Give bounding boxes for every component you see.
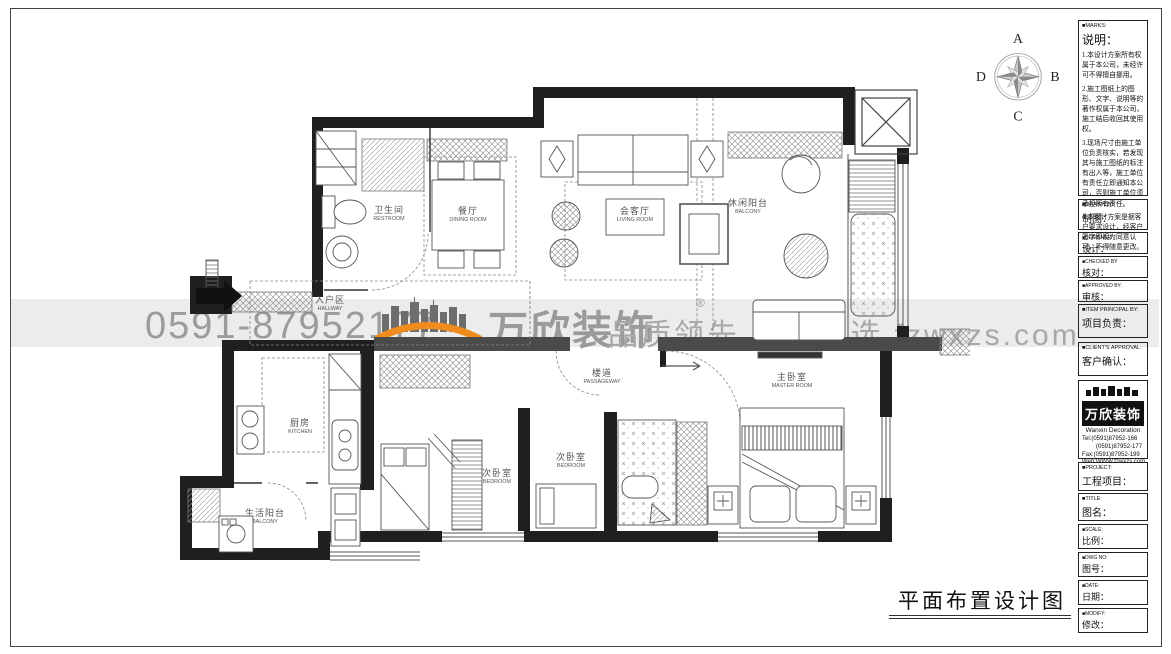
titleblock-company: 万欣装饰 Wanxin Decoration Tel:(0591)87952-1… <box>1078 380 1148 459</box>
label-living: 会客厅 LIVING ROOM <box>615 206 655 225</box>
svg-text:D: D <box>976 69 986 84</box>
label-service-balcony: 生活阳台 BALCONY <box>245 508 285 527</box>
air-shaft <box>855 90 917 154</box>
label-bedroom1: 次卧室 BEDROOM <box>481 468 512 487</box>
titleblock-checked-by: ■CHECKED BY 核对： <box>1078 256 1148 278</box>
title-underline <box>889 615 1071 616</box>
compass-icon: A B C D <box>975 26 1061 124</box>
label-master: 主卧室 MASTER ROOM <box>769 372 814 391</box>
drawing-sheet: 0591-87952177 万欣装饰 ® 品质领先 诚心之选 fzwxzs.co… <box>0 0 1171 654</box>
company-logo: 万欣装饰 <box>1082 401 1144 426</box>
company-name-en: Wanxin Decoration <box>1082 427 1144 434</box>
masonry-column-hatch <box>940 329 970 355</box>
titleblock-marks: ■MARKS: 说明： 1.本设计方案所有权属于本公司，未经许可不得擅自挪用。 … <box>1078 20 1148 196</box>
label-bedroom2: 次卧室 BEDROOM <box>555 452 586 471</box>
titleblock-designer: ■DESIGNER: 设计： <box>1078 232 1148 254</box>
svg-text:B: B <box>1050 69 1059 84</box>
company-skyline-icon <box>1082 386 1144 396</box>
titleblock-title: ■TITLE: 图名： <box>1078 493 1148 521</box>
titleblock-project: ■PROJECT: 工程项目： <box>1078 462 1148 491</box>
label-passage: 楼道 PASSAGEWAY <box>581 368 622 387</box>
titleblock-date: ■DATE: 日期： <box>1078 580 1148 605</box>
label-dining: 餐厅 DINING ROOM <box>447 206 488 225</box>
label-leisure-balcony: 休闲阳台 BALCONY <box>728 198 768 217</box>
titleblock-drawn-by: ■DRAWN BY 制图： <box>1078 199 1148 230</box>
titleblock-principal: ■ITEM PRINCIPAL BY: 项目负责： <box>1078 304 1148 338</box>
svg-text:C: C <box>1013 109 1022 124</box>
label-restroom: 卫生间 RESTROOM <box>372 205 407 224</box>
label-kitchen: 厨房 KITCHEN <box>287 418 313 437</box>
titleblock-approved-by: ■APPROVED BY: 审核： <box>1078 280 1148 302</box>
drawing-title: 平面布置设计图 <box>893 585 1071 615</box>
titleblock-client-approval: ■CLIENT'S APPROVAL: 客户确认： <box>1078 342 1148 376</box>
band-walls <box>374 337 942 351</box>
floor-plan <box>120 55 970 580</box>
title-underline2 <box>889 618 1071 619</box>
titleblock-scale: ■SCALE: 比例： <box>1078 524 1148 549</box>
label-hallway: 入户区 HALLWAY <box>315 295 345 314</box>
titleblock-dwg-no: ■DWG NO: 图号： <box>1078 552 1148 577</box>
svg-text:A: A <box>1013 31 1023 46</box>
titleblock-modify: ■MODIFY: 修改： <box>1078 608 1148 633</box>
